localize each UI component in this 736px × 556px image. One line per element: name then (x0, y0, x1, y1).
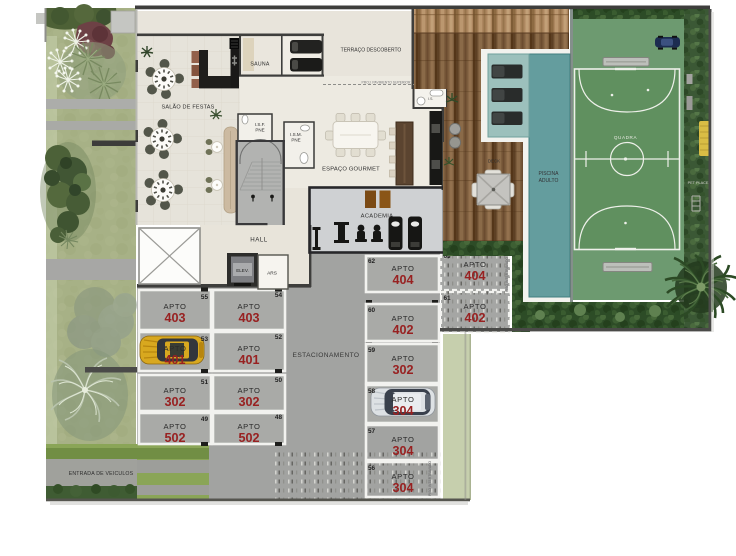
svg-text:302: 302 (392, 363, 413, 377)
svg-text:I.S.M.: I.S.M. (290, 132, 302, 137)
svg-text:PNE: PNE (255, 128, 264, 133)
svg-text:304: 304 (392, 444, 413, 458)
svg-text:APTO: APTO (464, 302, 487, 311)
svg-text:APTO: APTO (238, 302, 261, 311)
svg-text:APTO: APTO (392, 314, 415, 323)
svg-text:ESPAÇO GOURMET: ESPAÇO GOURMET (322, 167, 380, 173)
svg-text:57: 57 (368, 428, 376, 435)
svg-text:402: 402 (392, 323, 413, 337)
svg-text:404: 404 (392, 273, 413, 287)
svg-text:PISO INTERTRAVADO: PISO INTERTRAVADO (505, 257, 509, 292)
svg-text:502: 502 (238, 431, 259, 445)
svg-text:APTO: APTO (392, 354, 415, 363)
svg-text:54: 54 (275, 292, 283, 299)
svg-text:51: 51 (201, 379, 209, 386)
svg-text:ACADEMIA: ACADEMIA (361, 214, 394, 220)
svg-text:ESTACIONAMENTO: ESTACIONAMENTO (293, 352, 360, 359)
svg-text:SAUNA: SAUNA (250, 62, 270, 68)
svg-text:ELEV.: ELEV. (236, 268, 249, 273)
svg-text:TERRAÇO DESCOBERTO: TERRAÇO DESCOBERTO (341, 48, 402, 54)
svg-text:58: 58 (368, 388, 376, 395)
svg-text:SALÃO DE FESTAS: SALÃO DE FESTAS (161, 104, 214, 111)
svg-text:62: 62 (368, 258, 376, 265)
svg-text:403: 403 (164, 311, 185, 325)
svg-text:APTO: APTO (464, 260, 487, 269)
svg-text:PET PLACE: PET PLACE (688, 181, 709, 185)
svg-text:I.S.: I.S. (428, 97, 433, 101)
svg-text:PISO INTERTRAVADO: PISO INTERTRAVADO (428, 461, 432, 496)
svg-text:302: 302 (238, 395, 259, 409)
svg-text:ARS: ARS (267, 271, 277, 277)
svg-text:APTO: APTO (392, 264, 415, 273)
svg-text:402: 402 (464, 311, 485, 325)
svg-text:401: 401 (164, 353, 185, 367)
svg-text:APTO: APTO (164, 302, 187, 311)
svg-text:56: 56 (368, 465, 376, 472)
svg-text:PNE: PNE (291, 138, 300, 143)
svg-text:APTO: APTO (164, 344, 187, 353)
svg-text:I.S.F.: I.S.F. (255, 122, 265, 127)
svg-text:APTO: APTO (392, 395, 415, 404)
svg-text:404: 404 (464, 269, 485, 283)
svg-text:304: 304 (392, 481, 413, 495)
svg-text:APTO: APTO (392, 435, 415, 444)
svg-text:502: 502 (164, 431, 185, 445)
svg-text:48: 48 (275, 414, 283, 421)
svg-text:ENTRADA DE VEICULOS: ENTRADA DE VEICULOS (69, 471, 134, 477)
svg-text:60: 60 (368, 307, 376, 314)
svg-text:PROJ. PAVIMENTO SUPERIOR: PROJ. PAVIMENTO SUPERIOR (362, 80, 412, 84)
svg-text:PISCINA: PISCINA (538, 171, 559, 177)
svg-text:APTO: APTO (238, 344, 261, 353)
svg-text:55: 55 (201, 294, 209, 301)
svg-text:53: 53 (201, 336, 209, 343)
svg-text:APTO: APTO (238, 386, 261, 395)
svg-text:APTO: APTO (164, 422, 187, 431)
svg-text:ADULTO: ADULTO (539, 178, 559, 184)
svg-text:52: 52 (275, 334, 283, 341)
svg-text:QUADRA: QUADRA (614, 135, 638, 140)
svg-text:61: 61 (444, 295, 452, 302)
svg-text:APTO: APTO (238, 422, 261, 431)
svg-text:APTO: APTO (392, 472, 415, 481)
svg-text:50: 50 (275, 377, 283, 384)
svg-text:403: 403 (238, 311, 259, 325)
svg-text:302: 302 (164, 395, 185, 409)
svg-text:304: 304 (392, 404, 413, 418)
svg-text:401: 401 (238, 353, 259, 367)
svg-text:DECK: DECK (488, 159, 500, 164)
svg-text:49: 49 (201, 416, 209, 423)
svg-text:APTO: APTO (164, 386, 187, 395)
svg-text:HALL: HALL (250, 237, 268, 244)
svg-text:59: 59 (368, 347, 376, 354)
